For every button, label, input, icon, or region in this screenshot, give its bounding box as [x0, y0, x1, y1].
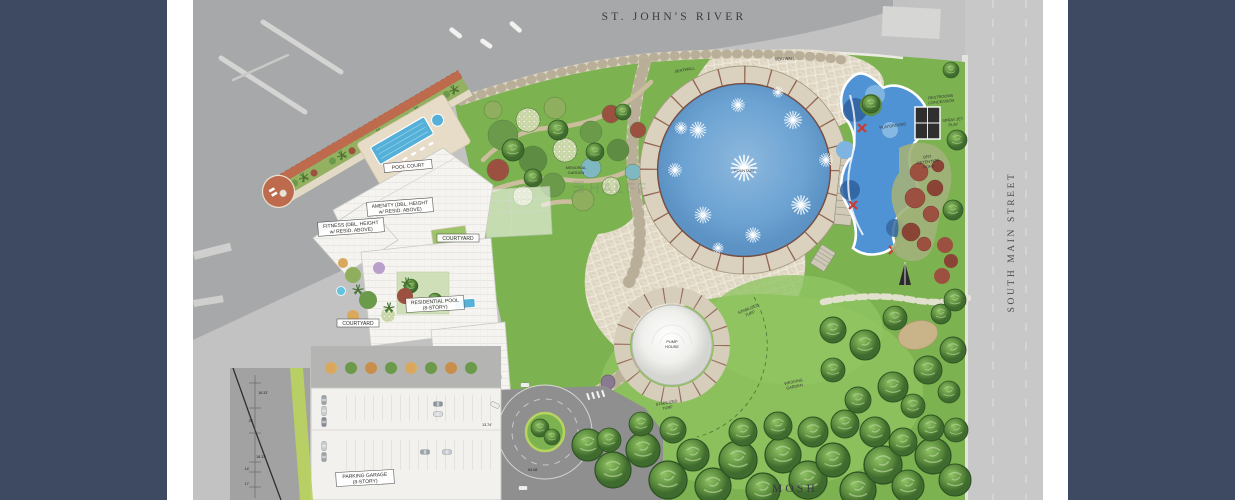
- dim-26: 26': [249, 419, 254, 423]
- residential-label: RESIDENTIAL POOL (8-STORY): [406, 295, 465, 312]
- dim-18-33-a: 18.33': [258, 391, 268, 395]
- street-title: SOUTH MAIN STREET: [1007, 172, 1017, 313]
- memorial-garden-label: MEMORIAL GARDEN: [566, 165, 588, 175]
- fountain-label: FOUNTAIN: [734, 168, 754, 173]
- pump-house-label: PUMP HOUSE: [665, 339, 679, 349]
- garage-drive-landscape: [311, 346, 501, 388]
- svg-text:HALFF: HALFF: [589, 180, 648, 197]
- courtyard-upper-label: COURTYARD: [437, 234, 479, 242]
- mosh-title: MOSH: [772, 483, 818, 495]
- dim-13-74: 13.74': [482, 423, 492, 427]
- dim-84-08: 84.08': [528, 468, 538, 472]
- dim-18-33-b: 18.33': [256, 455, 266, 459]
- dim-14: 14': [245, 467, 250, 471]
- south-main-street-road: [965, 0, 1043, 500]
- svg-text:COURTYARD: COURTYARD: [342, 321, 374, 327]
- survey-area: 18.33' 26' 18.33' 14' 17': [230, 368, 313, 500]
- svg-text:COURTYARD: COURTYARD: [442, 236, 474, 242]
- slide-left-bar: [0, 0, 167, 500]
- slide: 18.33' 26' 18.33' 14' 17' 13.74' 84.08': [0, 0, 1235, 500]
- courtyard-lower-label: COURTYARD: [337, 319, 379, 327]
- svg-text:PLAY: PLAY: [948, 121, 959, 127]
- river-title: ST. JOHN'S RIVER: [602, 11, 747, 23]
- site-plan-image: 18.33' 26' 18.33' 14' 17' 13.74' 84.08': [193, 0, 1043, 500]
- slide-right-bar: [1068, 0, 1235, 500]
- svg-text:GARDEN: GARDEN: [568, 170, 585, 175]
- restrooms-building: [915, 107, 940, 139]
- dim-17: 17': [245, 482, 250, 486]
- lawn-light-patch: [703, 275, 883, 385]
- parking-garage-label: PARKING GARAGE (8-STORY): [336, 469, 395, 486]
- ghost-building: [484, 186, 552, 237]
- site-plan-svg: 18.33' 26' 18.33' 14' 17' 13.74' 84.08': [193, 0, 1043, 500]
- svg-text:HOUSE: HOUSE: [665, 344, 679, 349]
